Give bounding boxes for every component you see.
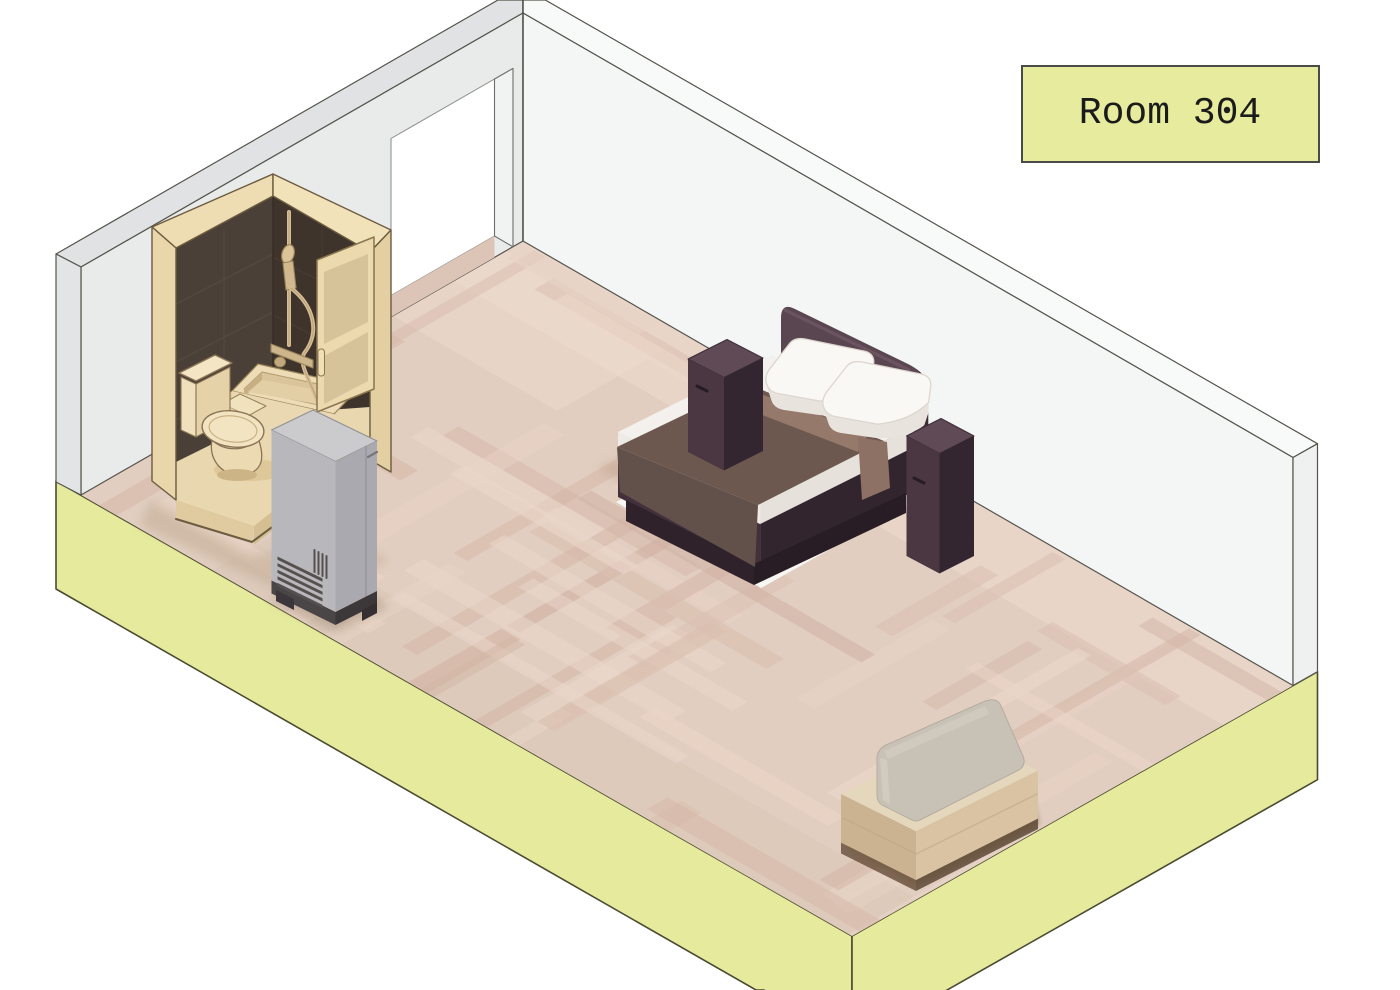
svg-text:Room 304: Room 304 xyxy=(1079,92,1261,135)
